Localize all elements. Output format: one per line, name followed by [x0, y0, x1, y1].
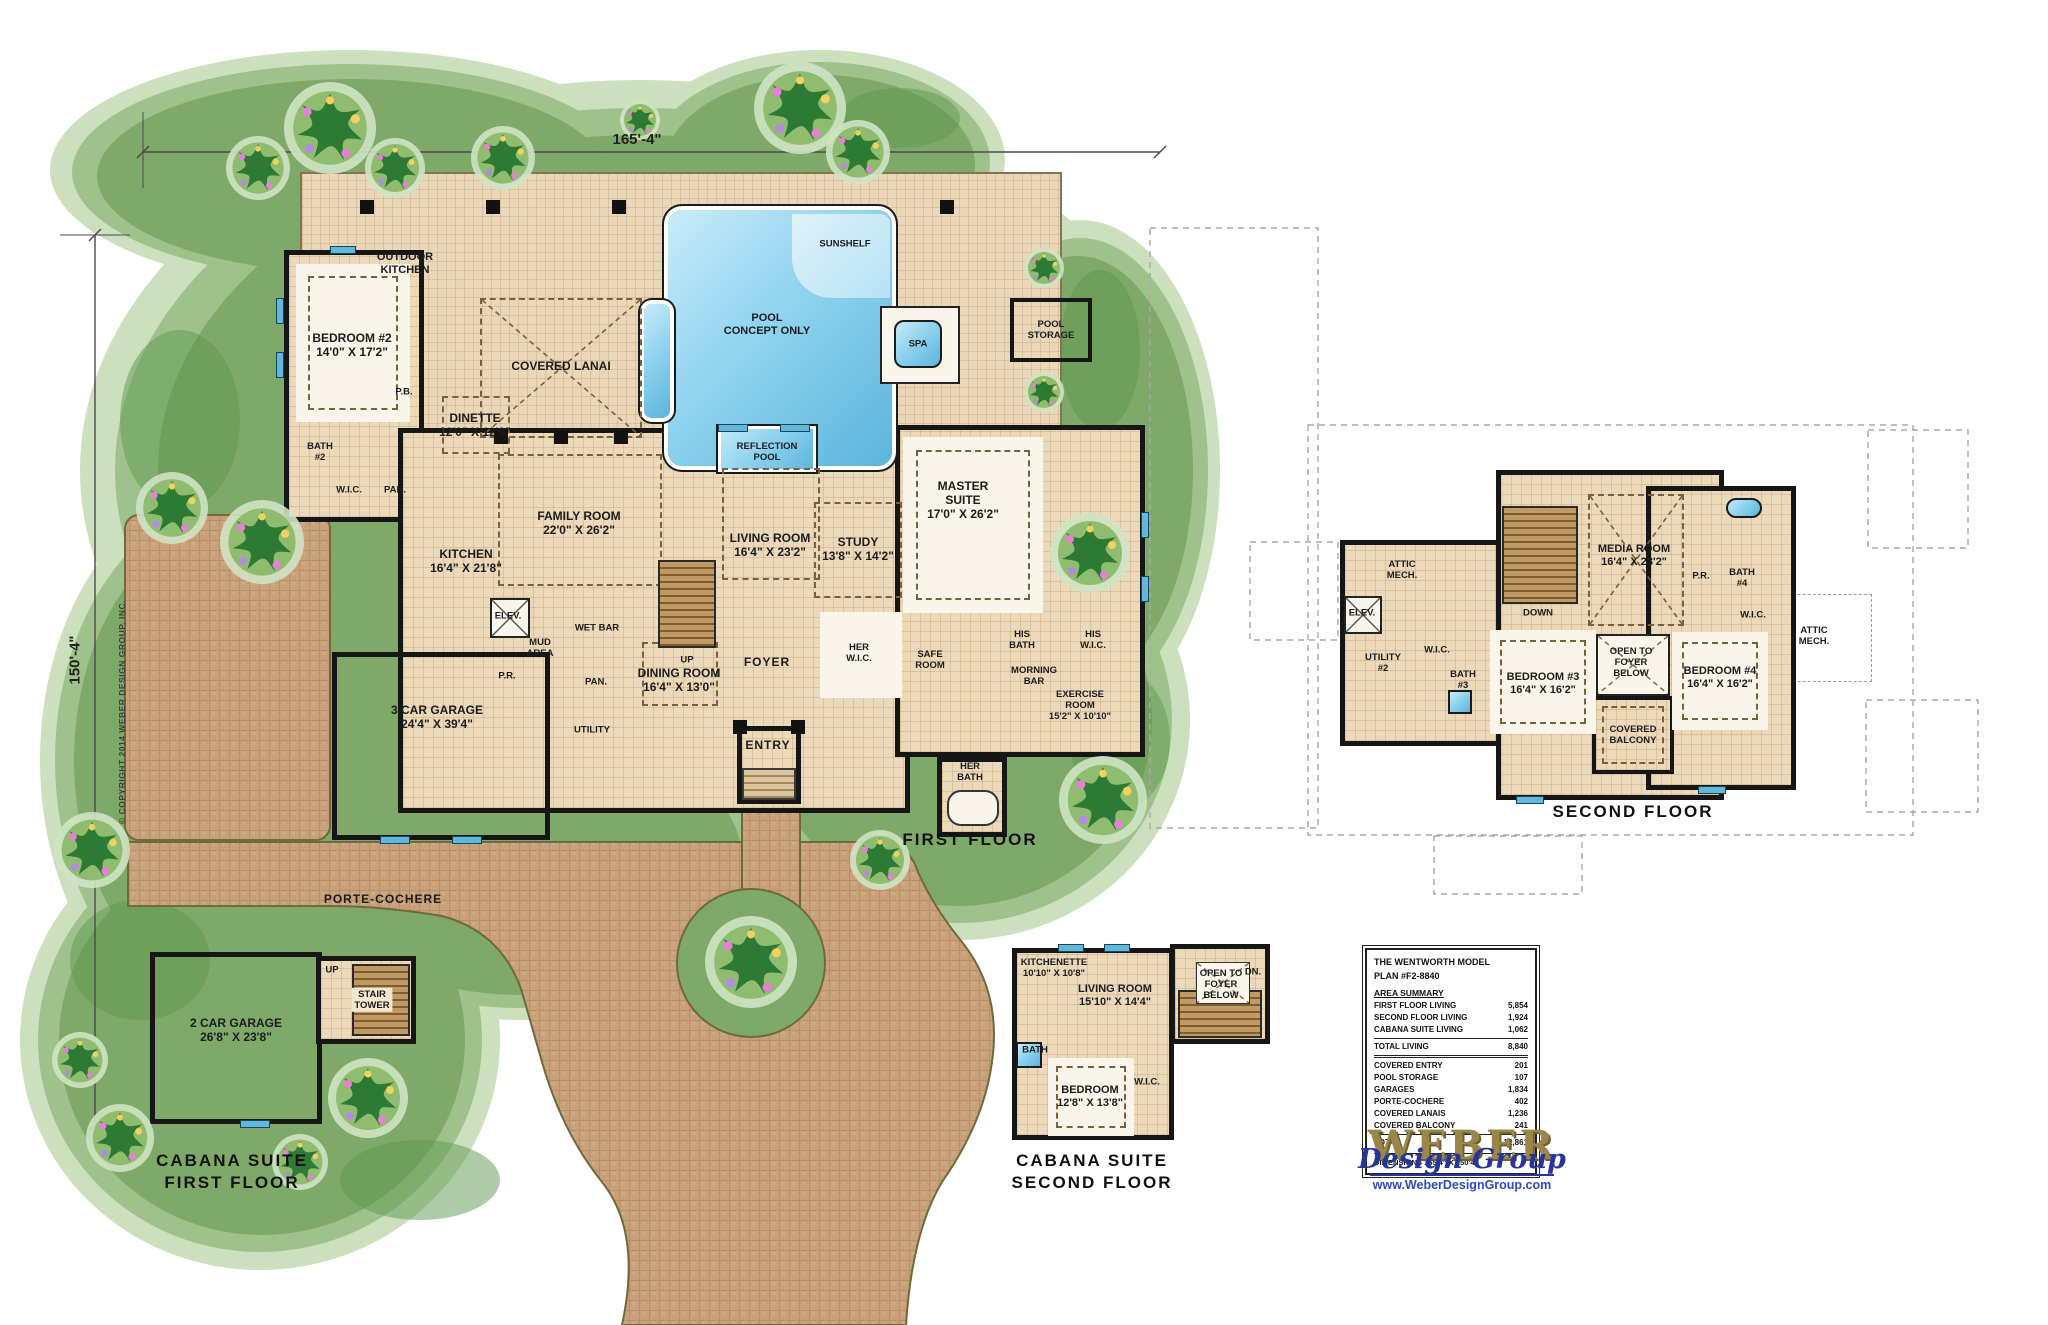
- label-his-bath: HISBATH: [1009, 629, 1035, 651]
- label-wic-bed2: W.I.C.: [336, 484, 362, 495]
- plan-title: THE WENTWORTH MODELPLAN #F2-8840: [1374, 956, 1528, 983]
- label-3-car-garage: 3 CAR GARAGE24'4" X 39'4": [391, 703, 483, 731]
- label-elevator-ff: ELEV.: [495, 610, 522, 621]
- label-cabana-bedroom: BEDROOM12'8" X 13'8": [1057, 1084, 1123, 1110]
- label-pool-bath: P.B.: [395, 386, 412, 397]
- label-cabana-bath: BATH: [1022, 1044, 1048, 1055]
- label-study: STUDY13'8" X 14'2": [822, 535, 894, 563]
- label-sunshelf: SUNSHELF: [819, 238, 870, 249]
- label-2-car-garage: 2 CAR GARAGE26'8" X 23'8": [190, 1016, 282, 1044]
- copyright-notice: © COPYRIGHT 2014 WEBER DESIGN GROUP, INC…: [117, 600, 127, 824]
- label-foyer: FOYER: [744, 655, 790, 669]
- label-master-suite: MASTERSUITE17'0" X 26'2": [927, 479, 999, 521]
- floor-plan-sheet: OUTDOORKITCHEN BEDROOM #214'0" X 17'2" B…: [0, 0, 2048, 1325]
- label-bedroom3: BEDROOM #316'4" X 16'2": [1507, 671, 1580, 697]
- label-open-to-foyer-sf: OPEN TOFOYERBELOW: [1610, 646, 1653, 680]
- table-row: CABANA SUITE LIVING1,062: [1374, 1024, 1528, 1036]
- label-her-wic: HERW.I.C.: [846, 642, 872, 664]
- living-area-rows: FIRST FLOOR LIVING5,854SECOND FLOOR LIVI…: [1374, 1000, 1528, 1036]
- label-his-wic: HISW.I.C.: [1080, 629, 1106, 651]
- label-bath4: BATH#4: [1729, 567, 1755, 589]
- label-cabana-living: LIVING ROOM15'10" X 14'4": [1078, 983, 1152, 1009]
- total-living-row: TOTAL LIVING8,840: [1374, 1041, 1528, 1053]
- label-porte-cochere: PORTE-COCHERE: [324, 892, 442, 906]
- label-pantry1: PAN.: [384, 484, 406, 495]
- label-attic-mech-left: ATTICMECH.: [1387, 559, 1418, 581]
- caption-cabana-second: CABANA SUITESECOND FLOOR: [1012, 1150, 1173, 1194]
- caption-second-floor: SECOND FLOOR: [1553, 801, 1714, 823]
- label-kitchenette: KITCHENETTE10'10" X 10'8": [1021, 957, 1088, 979]
- label-wic-br3: W.I.C.: [1424, 644, 1450, 655]
- label-wet-bar: WET BAR: [575, 622, 619, 633]
- label-cabana-wic: W.I.C.: [1134, 1076, 1160, 1087]
- dimension-height: 150'-4": [67, 635, 84, 684]
- label-bath3: BATH#3: [1450, 669, 1476, 691]
- label-powder-room-ff: P.R.: [498, 670, 515, 681]
- label-up-cabana: UP: [325, 964, 338, 975]
- label-dining-room: DINING ROOM16'4" X 13'0": [638, 666, 721, 694]
- label-utility-ff: UTILITY: [574, 724, 610, 735]
- table-row: COVERED LANAIS1,236: [1374, 1108, 1528, 1120]
- label-down: DOWN: [1523, 607, 1553, 618]
- label-exercise-room: EXERCISEROOM15'2" X 10'10": [1049, 689, 1111, 723]
- label-covered-balcony: COVEREDBALCONY: [1610, 724, 1657, 746]
- label-living-room: LIVING ROOM16'4" X 23'2": [730, 531, 811, 559]
- weber-design-group-logo: WEBER Design Group www.WeberDesignGroup.…: [1352, 1126, 1572, 1192]
- table-row: POOL STORAGE107: [1374, 1072, 1528, 1084]
- label-powder-room-sf: P.R.: [1692, 570, 1709, 581]
- label-bath2: BATH#2: [307, 441, 333, 463]
- label-entry: ENTRY: [745, 738, 790, 752]
- label-pool: POOLCONCEPT ONLY: [724, 312, 810, 338]
- logo-script: Design Group: [1352, 1146, 1572, 1173]
- label-mud-area: MUDAREA: [527, 637, 554, 659]
- logo-url: www.WeberDesignGroup.com: [1352, 1178, 1572, 1192]
- label-open-to-foyer-cabana: OPEN TOFOYERBELOW: [1200, 968, 1243, 1002]
- label-bedroom4: BEDROOM #416'4" X 16'2": [1684, 665, 1757, 691]
- table-row: COVERED ENTRY201: [1374, 1060, 1528, 1072]
- label-wic-br4: W.I.C.: [1740, 609, 1766, 620]
- table-row: SECOND FLOOR LIVING1,924: [1374, 1012, 1528, 1024]
- label-reflection-pool: REFLECTIONPOOL: [737, 441, 798, 463]
- label-kitchen: KITCHEN16'4" X 21'8": [430, 547, 502, 575]
- label-dn: DN.: [1245, 966, 1261, 977]
- table-row: GARAGES1,834: [1374, 1084, 1528, 1096]
- table-row: PORTE-COCHERE402: [1374, 1096, 1528, 1108]
- label-attic-mech-right: ATTICMECH.: [1799, 625, 1830, 647]
- label-elevator-sf: ELEV.: [1349, 607, 1376, 618]
- label-stair-tower: STAIRTOWER: [351, 988, 392, 1012]
- label-up-main: UP: [680, 654, 693, 665]
- dimension-width: 165'-4": [612, 131, 661, 148]
- label-dinette: DINETTE12'0" X 12'0": [439, 411, 511, 439]
- label-family-room: FAMILY ROOM22'0" X 26'2": [537, 509, 620, 537]
- label-her-bath: HERBATH: [957, 761, 983, 783]
- label-pantry2: PAN.: [585, 676, 607, 687]
- caption-cabana-first: CABANA SUITEFIRST FLOOR: [156, 1150, 308, 1194]
- label-spa: SPA: [909, 338, 928, 349]
- label-covered-lanai: COVERED LANAI: [511, 359, 610, 373]
- label-morning-bar: MORNINGBAR: [1011, 665, 1057, 687]
- label-pool-storage: POOLSTORAGE: [1028, 319, 1075, 341]
- other-area-rows: COVERED ENTRY201POOL STORAGE107GARAGES1,…: [1374, 1060, 1528, 1132]
- label-bedroom2: BEDROOM #214'0" X 17'2": [312, 331, 391, 359]
- label-utility2: UTILITY#2: [1365, 652, 1401, 674]
- label-media-room: MEDIA ROOM16'4" X 23'2": [1598, 543, 1670, 569]
- label-outdoor-kitchen: OUTDOORKITCHEN: [377, 251, 433, 277]
- table-row: FIRST FLOOR LIVING5,854: [1374, 1000, 1528, 1012]
- label-safe-room: SAFEROOM: [915, 649, 945, 671]
- area-summary-heading: AREA SUMMARY: [1374, 987, 1528, 1000]
- trees-layer: [0, 0, 2048, 1325]
- caption-first-floor: FIRST FLOOR: [902, 829, 1037, 851]
